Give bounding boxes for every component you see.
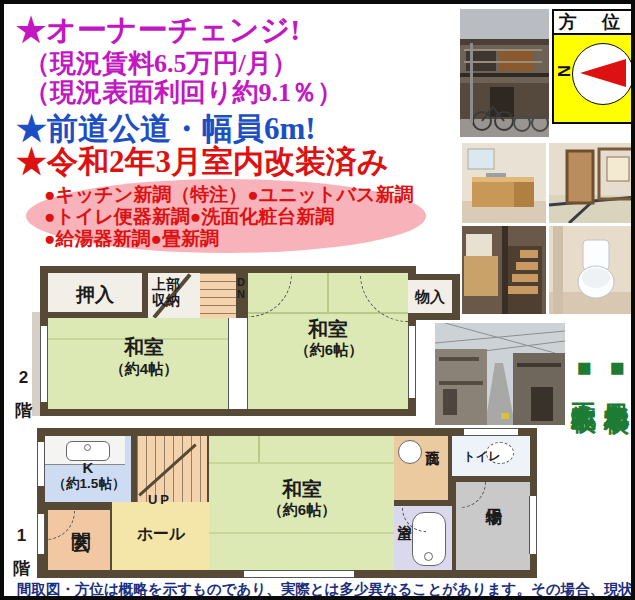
- floor2-washitsu6-size: （約6帖）: [276, 341, 382, 360]
- tatami-room-photo: [549, 143, 635, 223]
- compass-north-label: N: [555, 60, 575, 82]
- renovation-item-line: ●キッチン新調（特注）●ユニットバス新調: [44, 184, 413, 206]
- floor2-washitsu6-label: 和室: [282, 316, 374, 343]
- floor1-drain-icon: [424, 552, 433, 561]
- floor1-hall-label: ホール: [132, 524, 190, 545]
- floor1-window-bottom: [244, 570, 354, 578]
- floor2-sliding-door-divider: [228, 318, 248, 409]
- renovation-item-line: ●トイレ便器新調●洗面化粧台新調: [44, 206, 413, 228]
- staircase-photo: [462, 226, 546, 314]
- floor2-down-label: DN: [237, 276, 250, 300]
- floor1-entrance-door: [37, 514, 45, 554]
- floor2-washitsu4-size: （約4帖）: [88, 360, 200, 379]
- floor1-mat-line: [209, 532, 394, 534]
- floor2-washitsu4-label: 和室: [94, 334, 194, 361]
- elementary-school-label: ■北恩加島小学校: [600, 353, 633, 568]
- house-exterior-photo: [460, 9, 549, 137]
- floor2-eave-strip: [32, 312, 40, 416]
- headline-yield: （現況表面利回り約9.1％）: [24, 75, 343, 110]
- floor1-faucet-icon: [84, 444, 91, 451]
- floor2-closet-label: 押入: [48, 282, 142, 308]
- flyer-page: ★オーナーチェンジ! （現況賃料6.5万円/月） （現況表面利回り約9.1％） …: [0, 0, 635, 600]
- floor1-washitsu6-size: （約6帖）: [254, 501, 350, 520]
- floor2-window-left: [40, 326, 48, 402]
- renovation-items: ●キッチン新調（特注）●ユニットバス新調 ●トイレ便器新調●洗面化粧台新調 ●給…: [44, 184, 413, 250]
- floor2-mat-line: [327, 273, 329, 313]
- floor1-mat-line: [258, 436, 260, 462]
- compass-title: 方 位: [554, 11, 635, 35]
- floor1-floor-label: 1階: [10, 526, 33, 545]
- floor1-washbasin-icon: [398, 440, 422, 464]
- floor1-kitchen-size: （約1.5帖）: [44, 475, 134, 493]
- floor1-kitchen-label: K: [74, 459, 102, 476]
- floor1-washitsu6-label: 和室: [264, 476, 340, 503]
- school-district-text: ■北恩加島小学校 ■大正北中学校区: [567, 353, 633, 568]
- floor2-stairs: [200, 273, 236, 318]
- floor1-window-top: [464, 428, 518, 436]
- headline-renovated: ★令和2年3月室内改装済み: [16, 141, 389, 183]
- street-photo: [435, 323, 565, 425]
- floor1-window-right: [529, 496, 537, 554]
- floor2-window-right: [408, 326, 416, 398]
- headline-owner-change: ★オーナーチェンジ!: [16, 10, 300, 51]
- floor1-up-label: UP: [142, 492, 178, 507]
- kitchen-photo: [462, 143, 546, 223]
- floor2-storage-label: 物入: [406, 288, 454, 307]
- floor2-floor-label: 2階: [12, 368, 35, 387]
- floor2-upper-storage-label: 上部収納: [151, 276, 181, 308]
- disclaimer-text: 間取図・方位は概略を示すものであり、実際とは多少異なることがあります。その場合、…: [17, 580, 635, 599]
- junior-high-label: ■大正北中学校区: [567, 353, 600, 568]
- floor1-mat-line: [209, 462, 394, 464]
- floor1-toilet-label: トイレ: [456, 448, 508, 465]
- compass-panel: 方 位 N: [552, 9, 635, 124]
- toilet-photo: [549, 226, 635, 314]
- compass-needle-icon: [580, 59, 626, 87]
- renovation-item-line: ●給湯器新調●畳新調: [44, 228, 413, 250]
